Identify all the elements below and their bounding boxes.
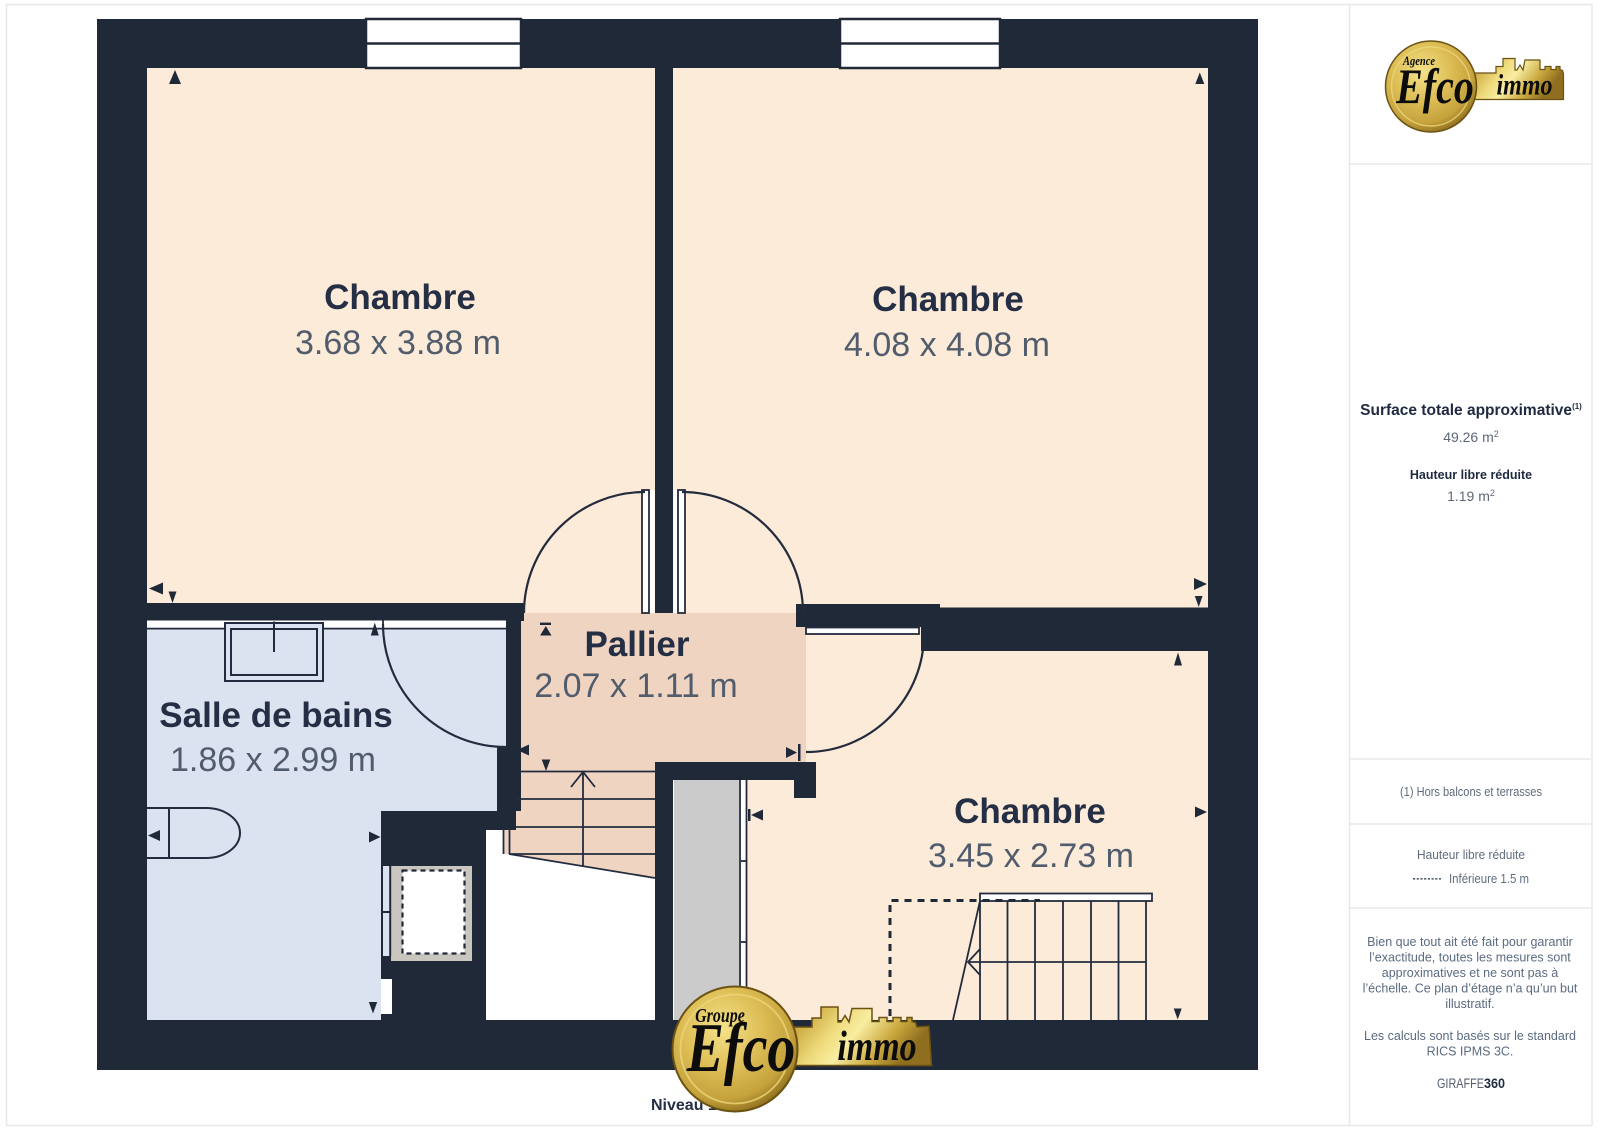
svg-text:2.07 x 1.11 m: 2.07 x 1.11 m bbox=[534, 667, 738, 705]
svg-text:RICS IPMS 3C.: RICS IPMS 3C. bbox=[1427, 1045, 1514, 1059]
svg-text:360: 360 bbox=[1484, 1075, 1505, 1091]
svg-text:1.86 x 2.99 m: 1.86 x 2.99 m bbox=[170, 741, 376, 779]
svg-text:Efco: Efco bbox=[1395, 59, 1474, 114]
svg-text:1.19 m2: 1.19 m2 bbox=[1447, 488, 1495, 504]
svg-text:Chambre: Chambre bbox=[872, 280, 1024, 319]
svg-text:Hauteur libre réduite: Hauteur libre réduite bbox=[1417, 848, 1525, 862]
svg-text:Surface totale approximative(1: Surface totale approximative(1) bbox=[1360, 402, 1582, 419]
svg-text:approximatives et ne sont pas: approximatives et ne sont pas à bbox=[1382, 966, 1559, 980]
svg-text:3.68 x 3.88 m: 3.68 x 3.88 m bbox=[295, 324, 501, 362]
svg-text:l’exactitude, toutes les mesur: l’exactitude, toutes les mesures sont bbox=[1369, 951, 1571, 965]
svg-text:Les calculs sont basés sur le: Les calculs sont basés sur le standard bbox=[1364, 1029, 1576, 1043]
svg-text:4.08 x 4.08 m: 4.08 x 4.08 m bbox=[844, 326, 1050, 364]
svg-text:Salle de bains: Salle de bains bbox=[159, 696, 392, 735]
svg-text:Inférieure 1.5 m: Inférieure 1.5 m bbox=[1449, 872, 1529, 886]
svg-text:immo: immo bbox=[837, 1024, 916, 1070]
svg-text:illustratif.: illustratif. bbox=[1445, 997, 1494, 1011]
svg-text:GIRAFFE: GIRAFFE bbox=[1437, 1075, 1484, 1091]
svg-text:l’échelle. Ce plan d’étage n’a: l’échelle. Ce plan d’étage n’a qu’un but bbox=[1363, 982, 1578, 996]
svg-text:Pallier: Pallier bbox=[584, 625, 689, 664]
svg-text:49.26 m2: 49.26 m2 bbox=[1443, 429, 1499, 445]
svg-text:Hauteur libre réduite: Hauteur libre réduite bbox=[1410, 468, 1532, 482]
svg-text:Chambre: Chambre bbox=[954, 792, 1106, 831]
svg-text:(1) Hors balcons et terrasses: (1) Hors balcons et terrasses bbox=[1400, 785, 1542, 799]
svg-text:Efco: Efco bbox=[686, 1009, 796, 1086]
svg-text:3.45 x 2.73 m: 3.45 x 2.73 m bbox=[928, 837, 1134, 875]
svg-text:immo: immo bbox=[1497, 68, 1553, 101]
svg-text:Chambre: Chambre bbox=[324, 278, 476, 317]
svg-text:Bien que tout ait été fait pou: Bien que tout ait été fait pour garantir bbox=[1367, 935, 1573, 949]
